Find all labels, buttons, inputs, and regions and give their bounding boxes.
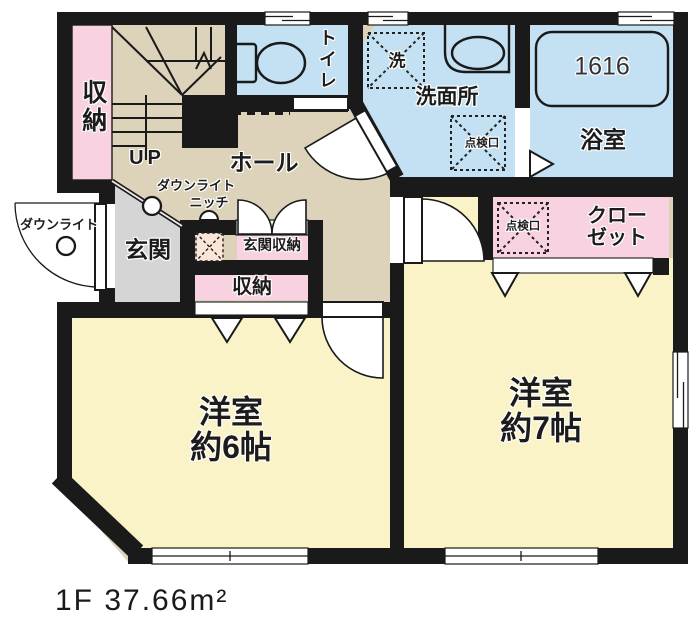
- niche-symbol: [200, 211, 218, 220]
- window-top-toilet: [265, 12, 310, 25]
- entrance-label: 玄関: [125, 237, 171, 262]
- window-bottom-room7: [445, 548, 598, 564]
- bathroom-label: 浴室: [580, 127, 626, 152]
- room7-label-line2: 約7帖: [500, 411, 582, 446]
- window-bottom-room6: [152, 548, 308, 564]
- closet-label-line1: クロー: [587, 205, 647, 227]
- floor-plan: 収納 UP ホール トイレ 洗 洗面所 点検口 1616 浴室 クローゼット 点…: [0, 0, 696, 628]
- stairs-up-label: UP: [129, 147, 165, 169]
- closet-label: クローゼット: [587, 205, 647, 249]
- window-right-room7: [673, 352, 688, 428]
- storage-top-left-label: 収納: [78, 79, 106, 135]
- window-top-bathroom: [618, 12, 674, 25]
- room6-label-line2: 約6帖: [190, 430, 272, 465]
- window-top-washroom: [368, 12, 408, 25]
- niche-label: ニッチ: [189, 196, 228, 210]
- closet-door-track: [493, 258, 653, 273]
- toilet-label: トイレ: [316, 29, 336, 92]
- floor-area-caption: 1F 37.66m²: [55, 584, 228, 618]
- room7-label: 洋室約7帖: [500, 376, 582, 446]
- room7-label-line1: 洋室: [500, 376, 582, 411]
- inspection-hatch-closet-label: 点検口: [506, 221, 541, 234]
- downlight-symbol-hall: [143, 197, 161, 215]
- hall-storage-label: 収納: [232, 276, 272, 298]
- inspection-hatch-washroom-label: 点検口: [465, 138, 500, 151]
- downlight-hall-label: ダウンライト: [157, 179, 235, 193]
- room6-label-line1: 洋室: [190, 395, 272, 430]
- hall-label: ホール: [230, 150, 299, 175]
- hall-storage-door-track: [195, 302, 308, 315]
- bathroom-floor: [530, 25, 673, 177]
- downlight-porch-label: ダウンライト: [20, 218, 98, 232]
- laundry-label: 洗: [389, 53, 406, 72]
- bathtub-size-label: 1616: [574, 53, 630, 81]
- toilet-door: [293, 97, 348, 110]
- closet-label-line2: ゼット: [587, 227, 647, 249]
- washroom-label: 洗面所: [416, 85, 479, 108]
- room6-label: 洋室約6帖: [190, 395, 272, 465]
- entrance-storage-label: 玄関収納: [243, 239, 301, 255]
- entrance-niche-box: [196, 233, 223, 261]
